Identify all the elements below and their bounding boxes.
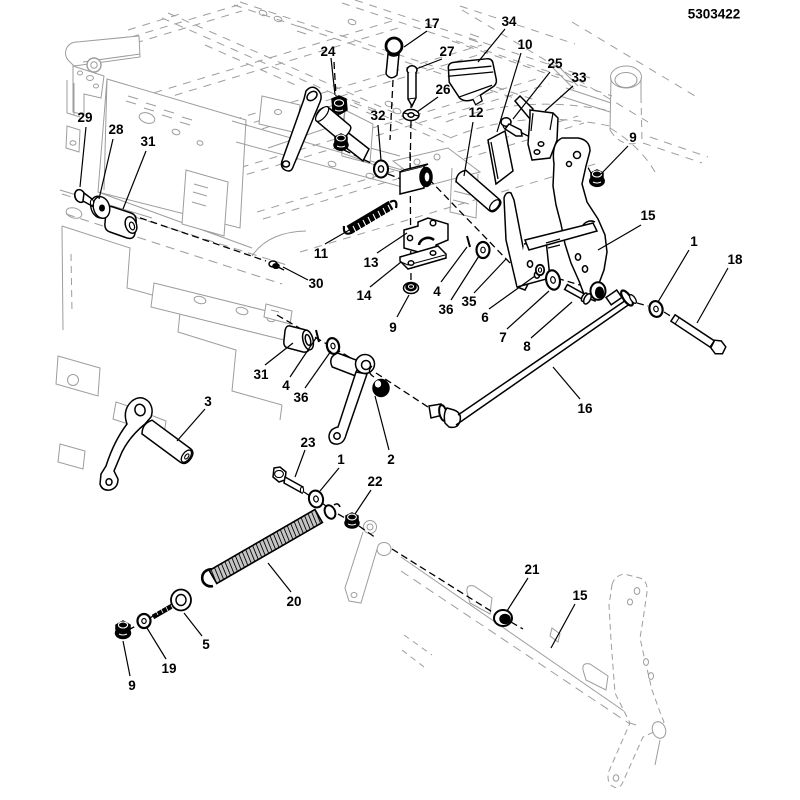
svg-text:10: 10	[517, 37, 532, 52]
svg-text:1: 1	[690, 234, 698, 249]
svg-text:7: 7	[499, 330, 507, 345]
svg-text:32: 32	[370, 108, 385, 123]
svg-text:4: 4	[433, 284, 441, 299]
svg-text:30: 30	[308, 276, 323, 291]
svg-text:27: 27	[439, 44, 454, 59]
svg-text:16: 16	[577, 401, 593, 416]
svg-text:31: 31	[253, 367, 269, 382]
svg-text:24: 24	[320, 44, 336, 59]
svg-text:25: 25	[547, 56, 563, 71]
svg-text:11: 11	[314, 246, 329, 261]
svg-text:5: 5	[202, 637, 210, 652]
svg-text:6: 6	[481, 310, 489, 325]
svg-text:1: 1	[337, 452, 345, 467]
svg-text:15: 15	[640, 208, 656, 223]
svg-text:36: 36	[293, 390, 309, 405]
svg-text:36: 36	[438, 302, 454, 317]
svg-text:22: 22	[367, 474, 382, 489]
svg-text:34: 34	[501, 14, 517, 29]
svg-text:5303422: 5303422	[688, 7, 741, 22]
svg-text:35: 35	[461, 294, 477, 309]
svg-text:23: 23	[300, 435, 316, 450]
svg-text:26: 26	[435, 82, 451, 97]
svg-text:18: 18	[727, 252, 743, 267]
svg-text:31: 31	[140, 134, 156, 149]
svg-text:20: 20	[286, 594, 301, 609]
svg-text:9: 9	[128, 678, 136, 693]
svg-text:28: 28	[108, 122, 124, 137]
svg-text:2: 2	[387, 452, 395, 467]
svg-text:3: 3	[204, 394, 212, 409]
svg-text:9: 9	[629, 130, 637, 145]
svg-text:12: 12	[468, 105, 483, 120]
svg-text:8: 8	[523, 339, 531, 354]
svg-text:29: 29	[77, 110, 92, 125]
svg-text:33: 33	[571, 70, 587, 85]
svg-text:15: 15	[572, 588, 588, 603]
svg-text:17: 17	[424, 16, 439, 31]
svg-text:21: 21	[524, 562, 540, 577]
svg-text:9: 9	[389, 320, 397, 335]
svg-text:13: 13	[363, 255, 379, 270]
svg-text:14: 14	[356, 288, 372, 303]
svg-text:4: 4	[282, 378, 290, 393]
svg-text:19: 19	[161, 661, 176, 676]
